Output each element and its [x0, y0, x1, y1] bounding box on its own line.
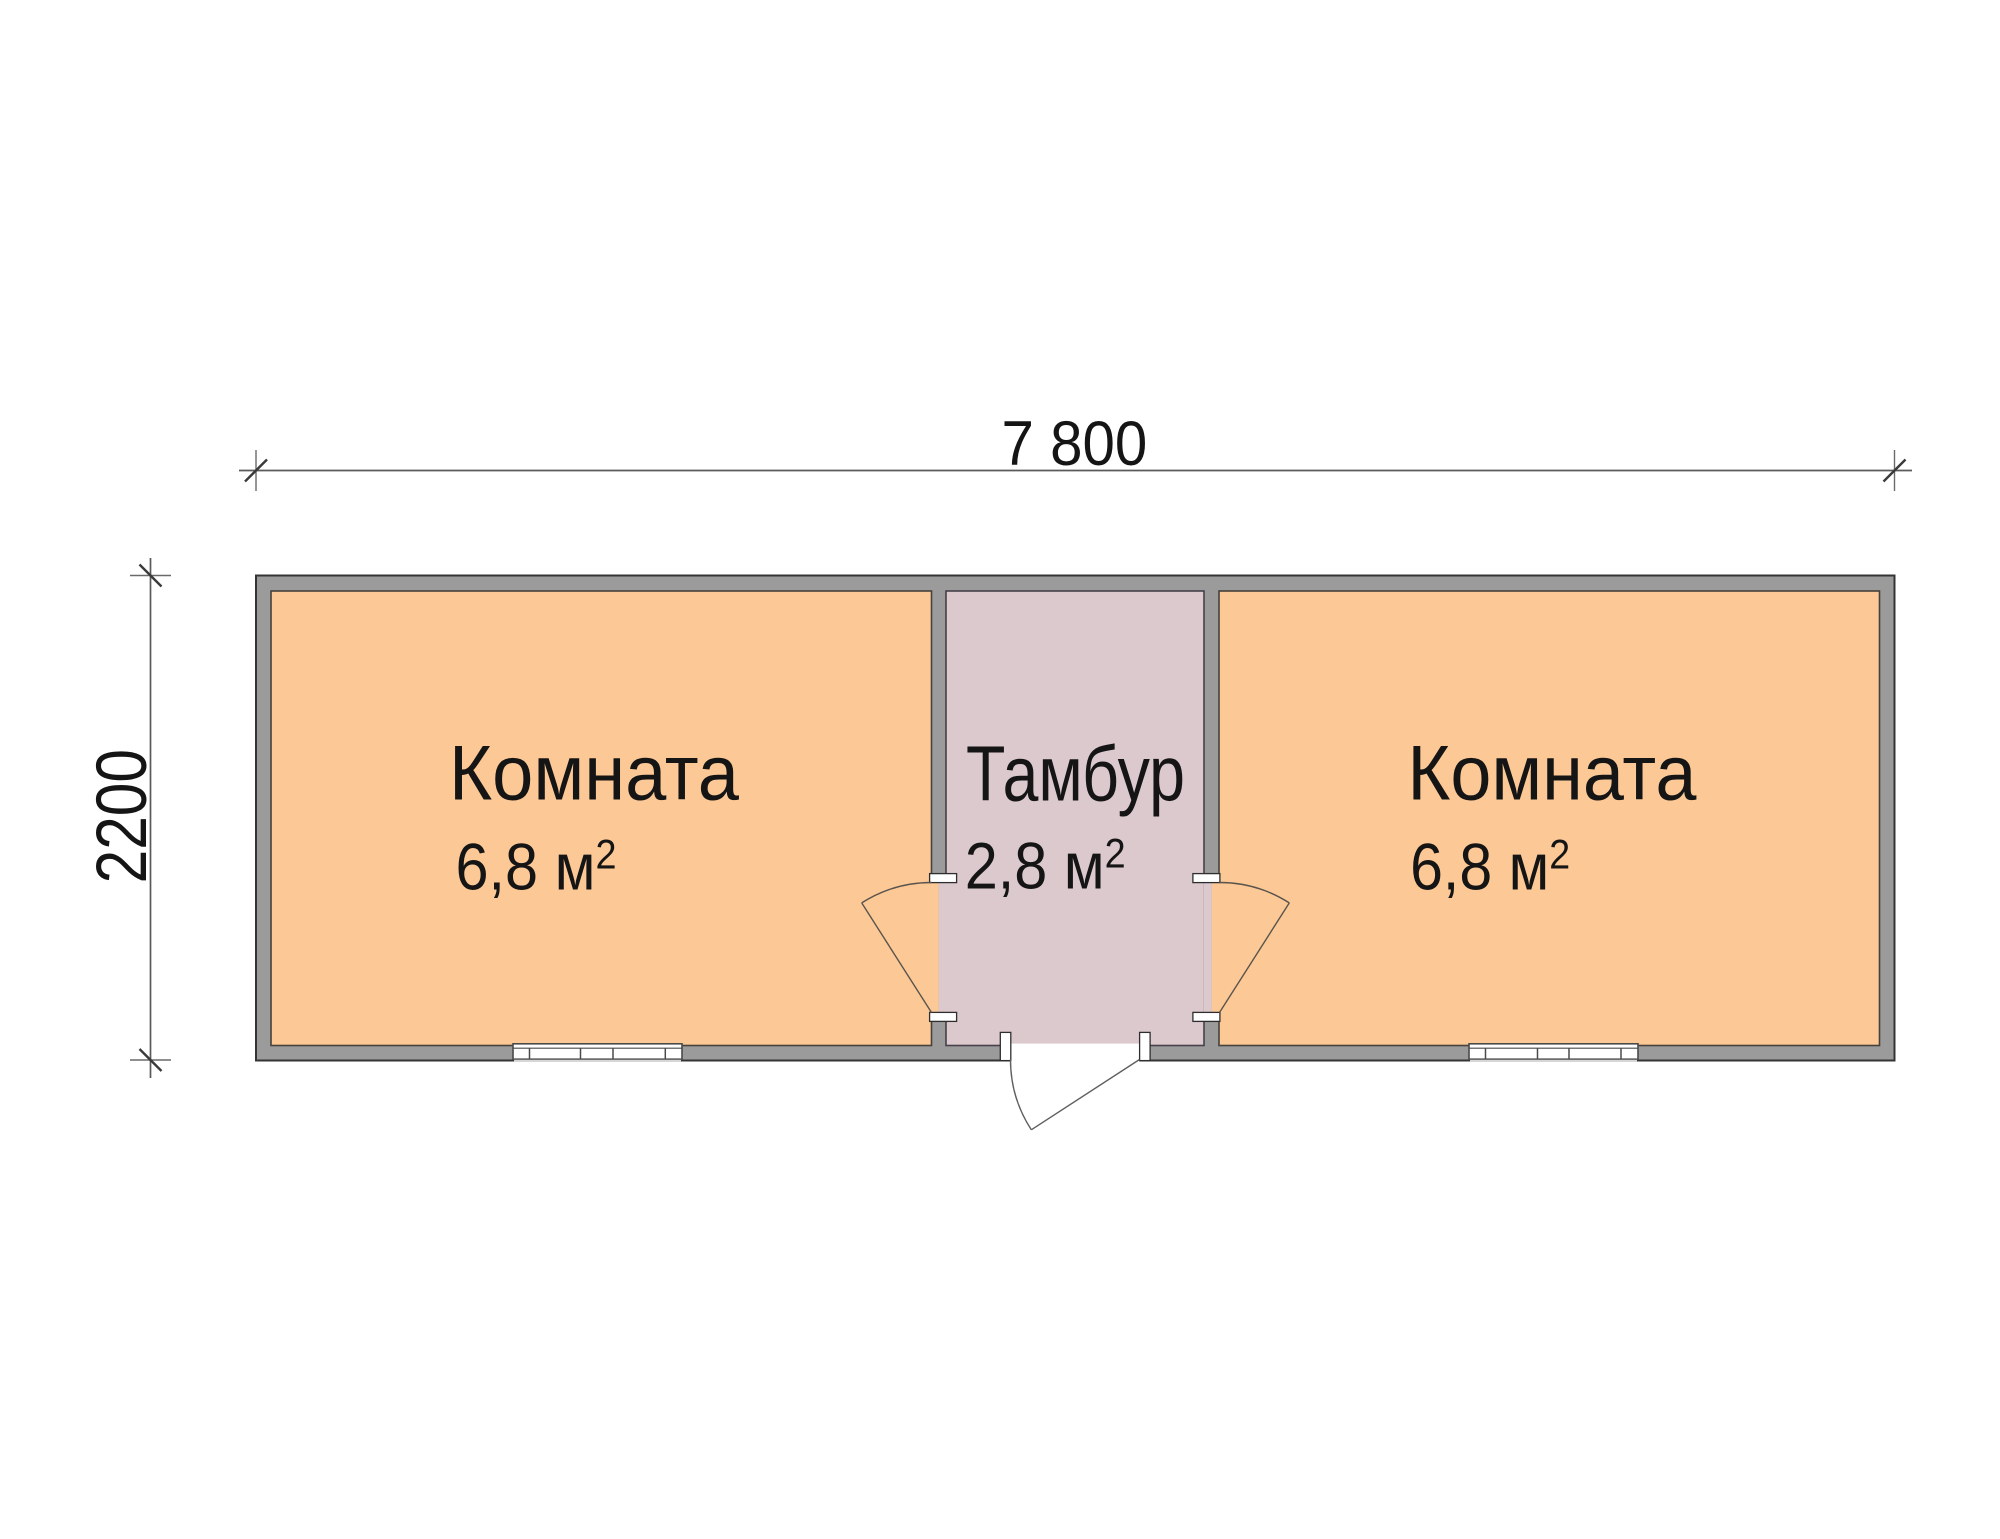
svg-text:Тамбур: Тамбур — [966, 730, 1185, 818]
svg-text:2200: 2200 — [83, 749, 162, 883]
svg-text:Комната: Комната — [1407, 729, 1697, 817]
svg-text:6,8 м2: 6,8 м2 — [1410, 830, 1570, 904]
svg-text:2,8 м2: 2,8 м2 — [965, 829, 1126, 903]
svg-text:7 800: 7 800 — [1002, 409, 1148, 479]
svg-text:6,8 м2: 6,8 м2 — [456, 830, 617, 904]
svg-text:Комната: Комната — [449, 729, 740, 817]
